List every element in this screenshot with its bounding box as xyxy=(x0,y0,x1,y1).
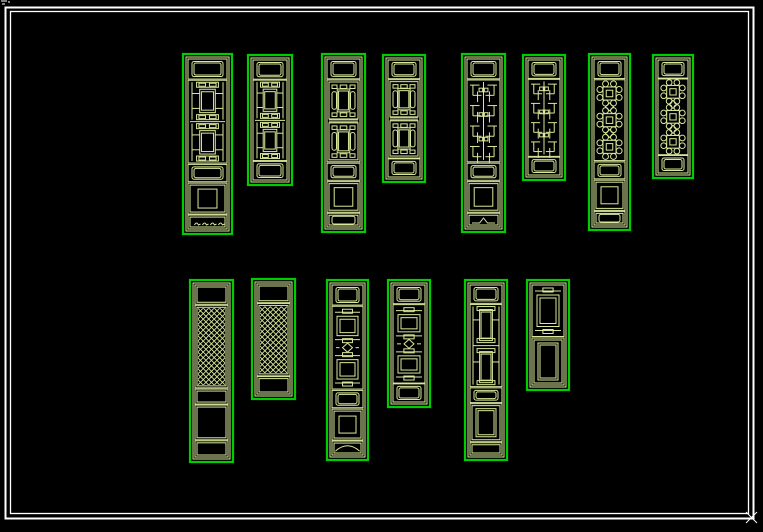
door-panel-top-1 xyxy=(183,54,232,234)
door-panel-top-3 xyxy=(322,54,365,232)
door-panel-top-6 xyxy=(523,55,565,180)
cad-viewport xyxy=(0,0,763,532)
door-panel-top-7 xyxy=(589,54,630,230)
cad-canvas xyxy=(0,0,763,532)
door-panel-bottom-6 xyxy=(527,280,569,390)
door-panel-top-2 xyxy=(248,55,292,185)
frame-artifacts xyxy=(1,1,757,523)
door-panel-top-4 xyxy=(383,55,425,182)
door-panel-top-8 xyxy=(653,55,693,178)
drawing-frame xyxy=(6,8,754,519)
door-panel-bottom-4 xyxy=(388,280,430,407)
door-panel-top-5 xyxy=(462,54,505,232)
door-panel-bottom-3 xyxy=(327,280,368,460)
door-panel-bottom-5 xyxy=(465,280,507,460)
